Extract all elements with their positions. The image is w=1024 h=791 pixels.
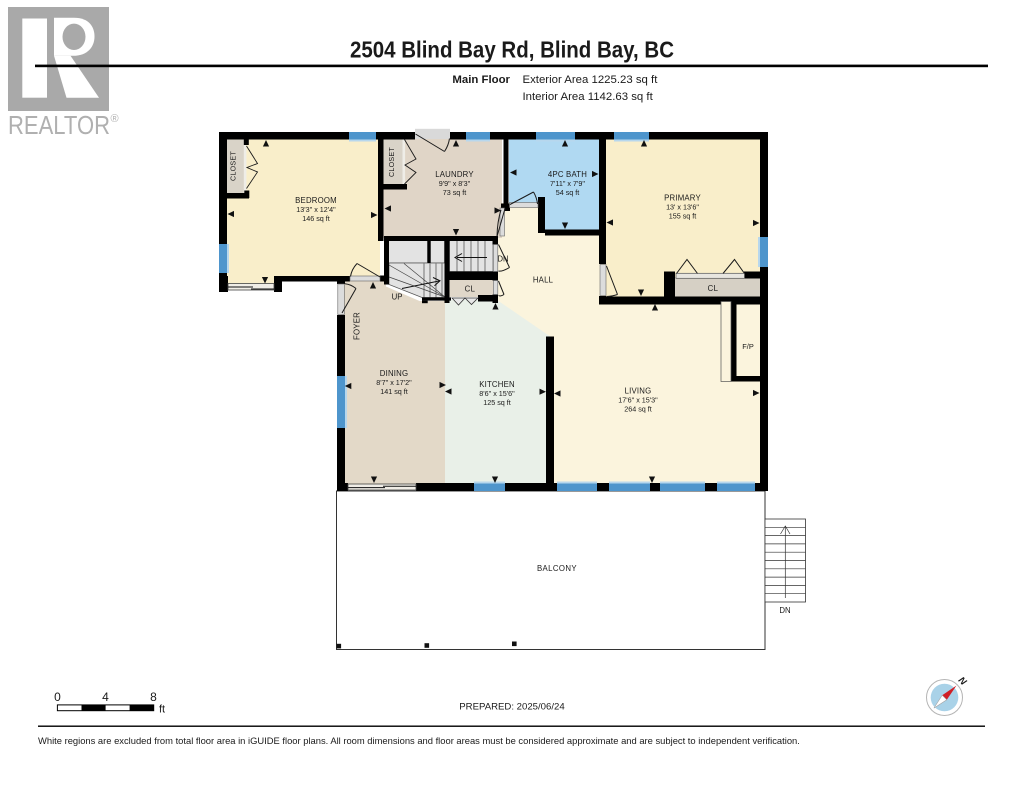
svg-text:F/P: F/P bbox=[742, 342, 754, 351]
svg-text:13'3" x 12'4": 13'3" x 12'4" bbox=[296, 205, 336, 214]
svg-text:125 sq ft: 125 sq ft bbox=[483, 398, 511, 407]
svg-text:UP: UP bbox=[392, 293, 403, 302]
svg-text:54 sq ft: 54 sq ft bbox=[556, 188, 580, 197]
svg-text:KITCHEN: KITCHEN bbox=[479, 380, 515, 389]
svg-text:Interior Area 1142.63 sq ft: Interior Area 1142.63 sq ft bbox=[523, 91, 654, 103]
svg-text:ft: ft bbox=[159, 704, 165, 716]
svg-text:9'9" x 8'3": 9'9" x 8'3" bbox=[439, 179, 471, 188]
svg-text:7'11" x 7'9": 7'11" x 7'9" bbox=[550, 179, 585, 188]
svg-text:8'6" x 15'6": 8'6" x 15'6" bbox=[479, 389, 515, 398]
svg-text:®: ® bbox=[111, 113, 119, 125]
svg-text:CLOSET: CLOSET bbox=[387, 147, 396, 177]
svg-text:8'7" x 17'2": 8'7" x 17'2" bbox=[376, 378, 412, 387]
svg-text:DN: DN bbox=[497, 255, 508, 264]
svg-text:LAUNDRY: LAUNDRY bbox=[435, 170, 474, 179]
svg-text:Exterior Area 1225.23 sq ft: Exterior Area 1225.23 sq ft bbox=[523, 74, 659, 86]
svg-text:CLOSET: CLOSET bbox=[229, 151, 238, 181]
svg-text:73 sq ft: 73 sq ft bbox=[443, 188, 467, 197]
svg-text:BEDROOM: BEDROOM bbox=[295, 196, 337, 205]
svg-text:BALCONY: BALCONY bbox=[537, 564, 577, 573]
svg-text:PREPARED: 2025/06/24: PREPARED: 2025/06/24 bbox=[459, 702, 565, 713]
svg-text:141 sq ft: 141 sq ft bbox=[380, 387, 408, 396]
svg-text:CL: CL bbox=[708, 284, 719, 293]
svg-text:17'6" x 15'3": 17'6" x 15'3" bbox=[618, 396, 658, 405]
svg-text:Main Floor: Main Floor bbox=[452, 74, 510, 86]
svg-text:LIVING: LIVING bbox=[625, 387, 652, 396]
svg-text:264 sq ft: 264 sq ft bbox=[624, 405, 652, 414]
svg-text:146 sq ft: 146 sq ft bbox=[302, 214, 330, 223]
svg-text:13' x 13'6": 13' x 13'6" bbox=[666, 203, 699, 212]
svg-text:4: 4 bbox=[102, 690, 109, 704]
svg-text:2504 Blind Bay Rd, Blind Bay,: 2504 Blind Bay Rd, Blind Bay, BC bbox=[350, 37, 674, 63]
svg-text:HALL: HALL bbox=[533, 276, 554, 285]
svg-text:PRIMARY: PRIMARY bbox=[664, 194, 701, 203]
svg-text:0: 0 bbox=[54, 690, 61, 704]
svg-text:DN: DN bbox=[779, 606, 790, 615]
svg-text:REALTOR: REALTOR bbox=[8, 110, 110, 140]
svg-text:155 sq ft: 155 sq ft bbox=[669, 212, 697, 221]
svg-text:8: 8 bbox=[150, 690, 157, 704]
svg-text:DINING: DINING bbox=[380, 369, 409, 378]
svg-text:FOYER: FOYER bbox=[353, 312, 362, 340]
svg-text:CL: CL bbox=[465, 285, 476, 294]
svg-text:4PC BATH: 4PC BATH bbox=[548, 170, 587, 179]
svg-text:White regions are excluded fro: White regions are excluded from total fl… bbox=[38, 735, 800, 746]
